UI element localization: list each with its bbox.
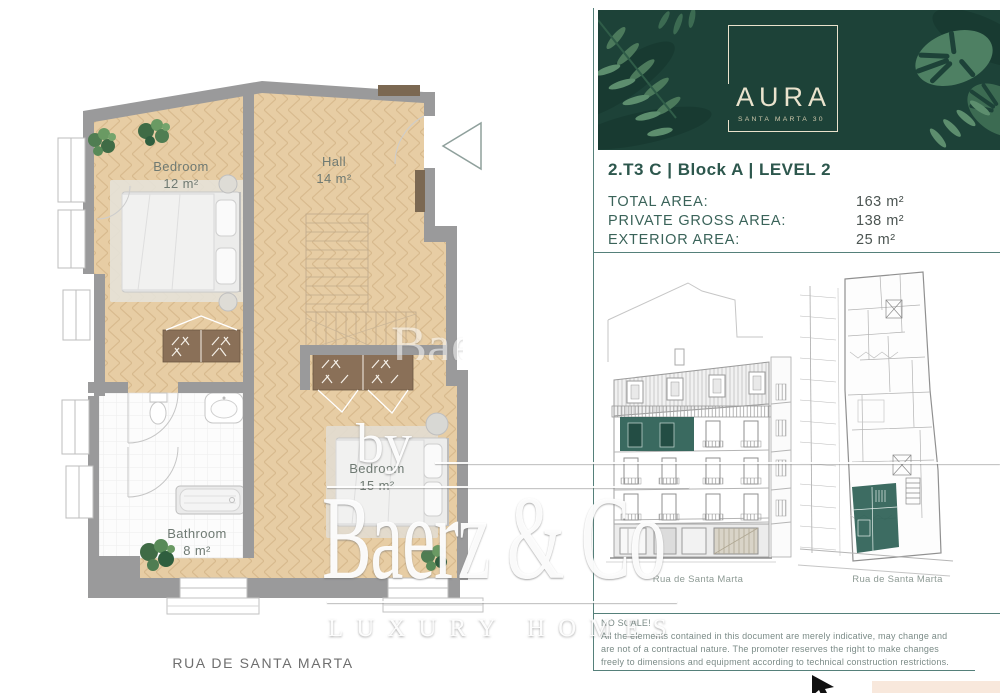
- site-key-plan-drawing: [795, 260, 1000, 590]
- floor-plan-drawing: [0, 0, 590, 693]
- room-label-bedroom-15: Bedroom15 m²: [322, 460, 432, 494]
- disclaimer-bottom-line: [593, 670, 975, 671]
- area-row-total: TOTAL AREA: 163 m²: [608, 194, 993, 213]
- area-row-exterior: EXTERIOR AREA: 25 m²: [608, 232, 993, 251]
- logo-subtitle: SANTA MARTA 30: [738, 116, 825, 123]
- logo-title: AURA: [736, 82, 831, 113]
- section-divider-line: [593, 252, 1000, 253]
- room-label-hall: Hall14 m²: [279, 153, 389, 187]
- brochure-page: Bedroom12 m² Hall14 m² Bathroom8 m² Bedr…: [0, 0, 1000, 693]
- street-label: RUA DE SANTA MARTA: [138, 655, 388, 671]
- elevation-caption: Rua de Santa Marta: [598, 574, 798, 585]
- area-row-private-gross: PRIVATE GROSS AREA: 138 m²: [608, 213, 993, 232]
- panel-divider-line: [593, 8, 594, 670]
- highlight-unit-siteplan: [852, 483, 899, 553]
- footer-tint: [872, 681, 1000, 693]
- room-label-bedroom-12: Bedroom12 m²: [126, 158, 236, 192]
- unit-title: 2.T3 C | Block A | LEVEL 2: [608, 160, 831, 180]
- entrance-arrow-icon: [443, 123, 481, 169]
- disclaimer-text: NO SCALE! All the elements contained in …: [601, 617, 979, 669]
- siteplan-caption: Rua de Santa Marta: [795, 574, 1000, 585]
- mouse-cursor-icon: [808, 672, 838, 693]
- brand-banner: AURA SANTA MARTA 30: [598, 10, 1000, 150]
- disclaimer-top-line: [593, 613, 1000, 614]
- room-label-bathroom: Bathroom8 m²: [142, 525, 252, 559]
- building-elevation-drawing: [598, 265, 798, 595]
- bed-bedroom-12: [110, 175, 246, 311]
- watermark-fragment: Bae: [391, 314, 463, 360]
